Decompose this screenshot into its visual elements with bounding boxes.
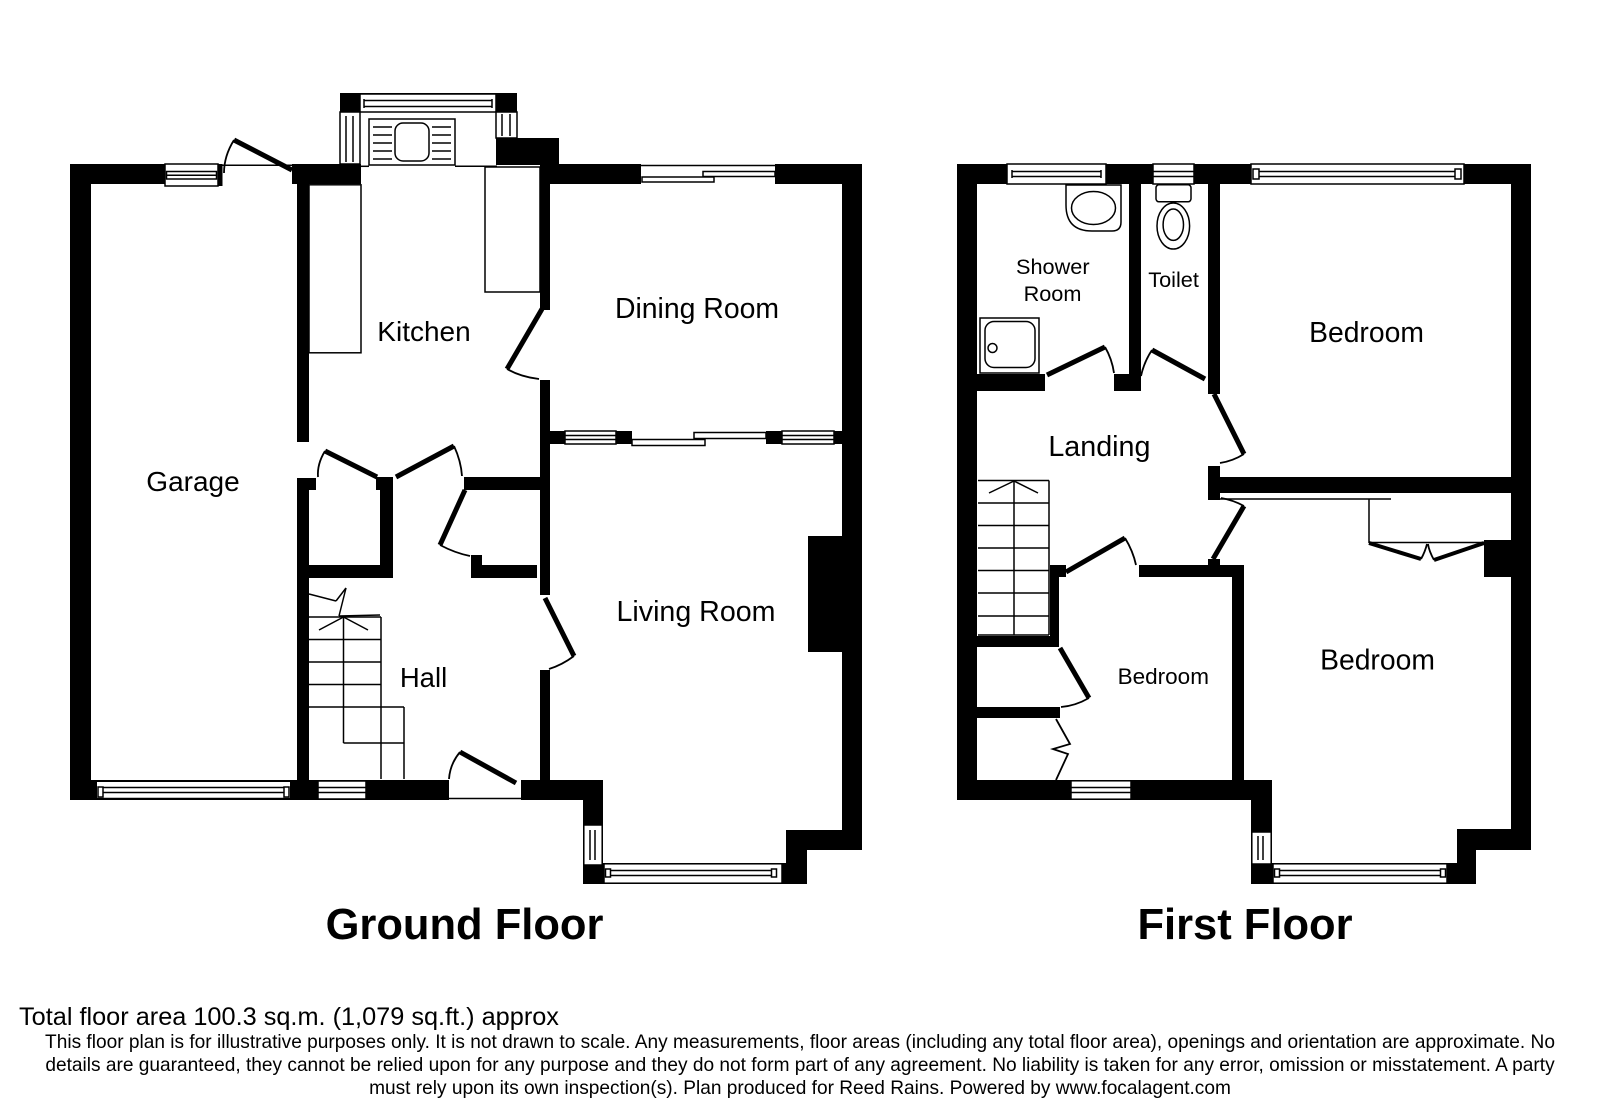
svg-text:Landing: Landing (1048, 431, 1150, 463)
svg-text:Bedroom: Bedroom (1309, 316, 1424, 348)
svg-text:Hall: Hall (400, 662, 447, 693)
svg-text:Dining Room: Dining Room (615, 293, 779, 325)
svg-text:Total floor area 100.3 sq.m. (: Total floor area 100.3 sq.m. (1,079 sq.f… (19, 1003, 559, 1031)
svg-text:Ground Floor: Ground Floor (326, 901, 604, 949)
svg-text:Room: Room (1024, 281, 1082, 306)
svg-text:details are guaranteed, they c: details are guaranteed, they cannot be r… (45, 1055, 1555, 1076)
svg-text:Bedroom: Bedroom (1320, 644, 1435, 676)
svg-text:First Floor: First Floor (1137, 901, 1352, 949)
svg-text:Kitchen: Kitchen (377, 316, 470, 347)
svg-text:Bedroom: Bedroom (1118, 664, 1209, 689)
svg-text:must rely upon its own inspect: must rely upon its own inspection(s). Pl… (369, 1078, 1231, 1099)
svg-text:Toilet: Toilet (1148, 267, 1199, 292)
svg-text:This floor plan is for illustr: This floor plan is for illustrative purp… (45, 1032, 1555, 1053)
svg-text:Shower: Shower (1016, 254, 1090, 279)
svg-text:Garage: Garage (146, 466, 239, 497)
svg-text:Living Room: Living Room (617, 596, 776, 628)
